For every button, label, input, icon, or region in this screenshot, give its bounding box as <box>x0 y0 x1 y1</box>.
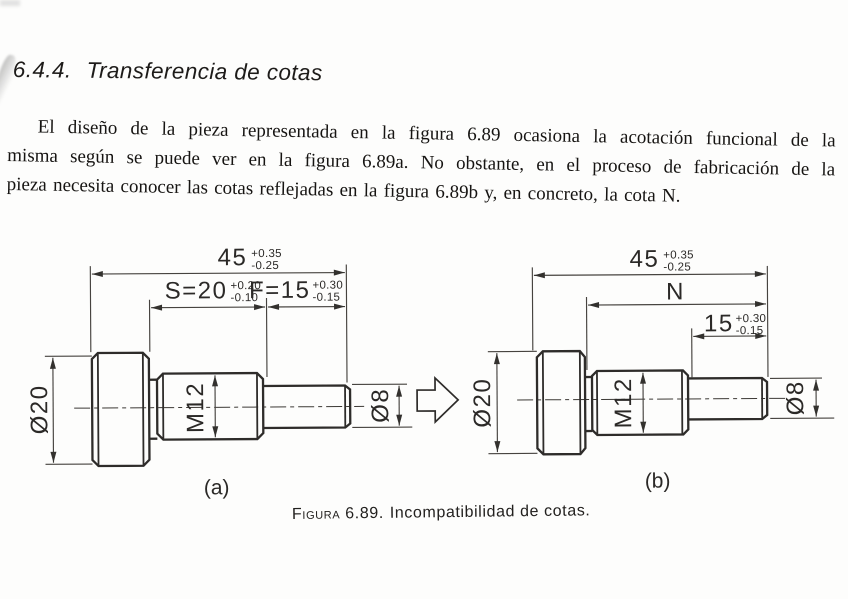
dim-text: M12 <box>182 382 209 433</box>
dimension-line <box>497 353 498 452</box>
dim-text: Ø20 <box>469 378 496 428</box>
part-outline <box>537 350 768 454</box>
dim-thread-b: M12 <box>610 373 643 433</box>
dim-text: 15 <box>704 310 734 337</box>
dim-text: 45 <box>629 246 659 273</box>
tolerance-upper: +0.35 <box>663 249 694 261</box>
dim-text: S=20 <box>165 277 228 304</box>
figure-caption-number: Figura 6.89. <box>292 505 384 523</box>
dim-thread-a: M12 <box>182 375 215 437</box>
part-thread-body <box>592 370 688 435</box>
dim-length-b: 15 +0.30 -0.15 <box>692 310 767 377</box>
dim-head-diameter-a: Ø20 <box>26 356 93 464</box>
dim-f-a: F=15 +0.30 -0.15 <box>249 277 345 308</box>
dim-text: M12 <box>610 377 637 428</box>
tolerance-lower: -0.25 <box>251 260 279 272</box>
dim-text: F=15 <box>249 277 311 304</box>
dimension-line <box>151 307 265 308</box>
dimension-line <box>534 274 766 275</box>
part-head <box>92 353 150 466</box>
tolerance-upper: +0.35 <box>251 248 282 260</box>
figure-caption: Figura 6.89.Incompatibilidad de cotas. <box>292 502 591 524</box>
tolerance-upper: +0.30 <box>312 280 343 292</box>
drawing-a: Ø20 45 +0.35 -0.25 S=20 +0.20 -0.10 F=15… <box>25 243 413 500</box>
subfigure-label-b: (b) <box>645 470 671 493</box>
tolerance-lower: -0.15 <box>312 292 340 304</box>
part-head-chamfer-lines <box>543 351 581 454</box>
centerline <box>517 398 787 400</box>
dim-head-diameter-b: Ø20 <box>469 351 538 453</box>
tolerance-upper: +0.30 <box>736 313 767 325</box>
part-thread-body <box>157 373 263 440</box>
dim-text: 45 <box>217 244 247 271</box>
figure-caption-text: Incompatibilidad de cotas. <box>390 502 591 521</box>
tolerance-lower: -0.15 <box>736 325 764 337</box>
centerline <box>74 406 364 408</box>
dim-text: Ø20 <box>26 384 53 434</box>
part-outline <box>92 351 351 466</box>
extension-line <box>149 298 266 378</box>
part-thread-chamfer-lines <box>163 373 257 440</box>
dim-text: Ø8 <box>782 380 809 415</box>
dimension-line <box>92 273 345 275</box>
dim-shaft-diameter-a: Ø8 <box>352 384 412 427</box>
dim-text: Ø8 <box>367 388 394 423</box>
scanned-book-page: 6.4.4.Transferencia de cotas El diseño d… <box>0 0 848 599</box>
tolerance-lower: -0.25 <box>663 261 691 273</box>
dim-overall-a: 45 +0.35 -0.25 <box>90 244 347 385</box>
part-head-chamfer-lines <box>98 353 144 466</box>
drawing-b: Ø20 45 +0.35 -0.25 N 15 +0.30 -0.15 <box>468 245 835 494</box>
transform-arrow-icon <box>417 378 458 422</box>
dim-text: N <box>666 278 685 305</box>
subfigure-label-a: (a) <box>204 476 230 499</box>
